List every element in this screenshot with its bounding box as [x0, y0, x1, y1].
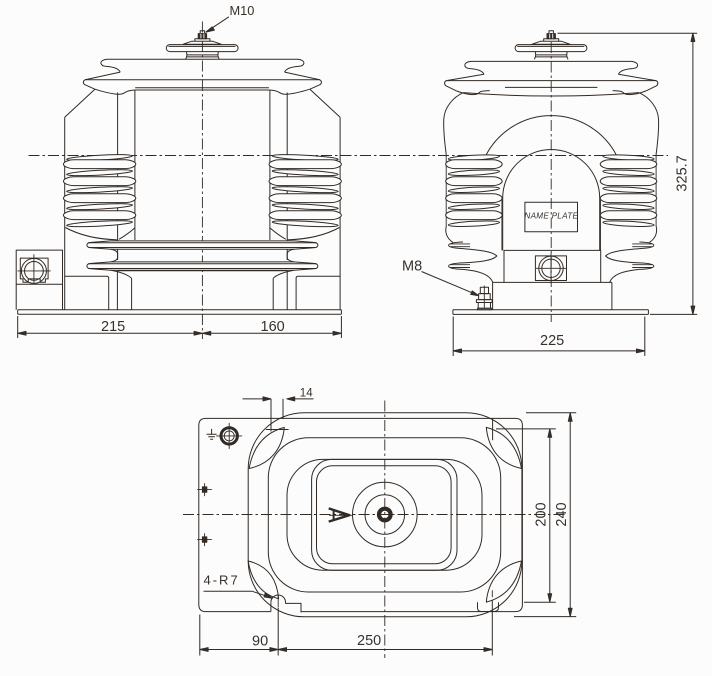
svg-text:200: 200: [533, 502, 549, 526]
svg-text:90: 90: [252, 633, 268, 649]
svg-text:M10: M10: [230, 3, 255, 18]
svg-text:225: 225: [540, 333, 564, 349]
svg-text:4-R7: 4-R7: [204, 573, 240, 588]
svg-text:215: 215: [101, 319, 125, 335]
svg-text:NAME PLATE: NAME PLATE: [524, 211, 578, 220]
svg-text:14: 14: [300, 387, 313, 399]
svg-text:160: 160: [261, 319, 285, 335]
svg-text:325.7: 325.7: [675, 155, 691, 191]
svg-text:240: 240: [554, 502, 570, 526]
svg-text:250: 250: [357, 633, 381, 649]
svg-text:M8: M8: [402, 258, 422, 274]
